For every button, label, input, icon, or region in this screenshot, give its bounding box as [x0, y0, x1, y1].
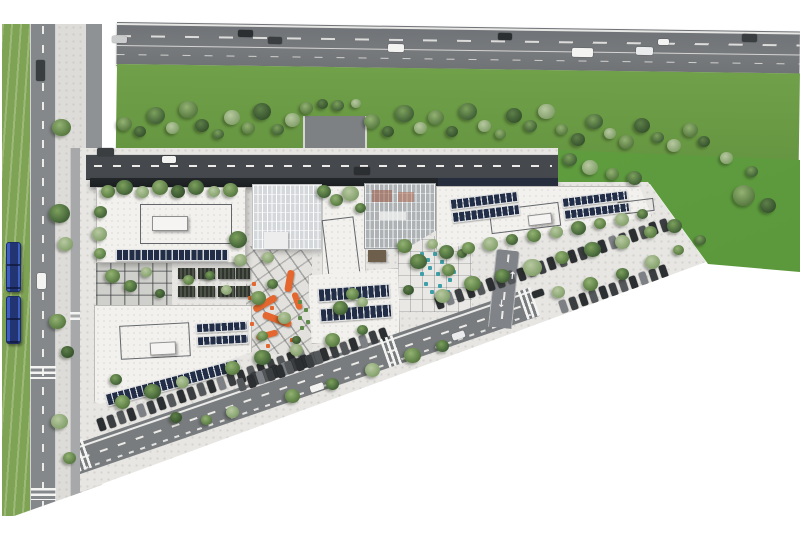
parked-car [176, 390, 186, 404]
orange-chair [250, 322, 254, 326]
parked-car [638, 272, 648, 286]
parked-car [557, 253, 567, 267]
pergola-south-of-atrium [368, 250, 386, 262]
orange-chair [266, 344, 270, 348]
parked-car [658, 265, 668, 279]
teal-seat [436, 272, 440, 276]
parked-car [628, 275, 638, 289]
parked-car [96, 417, 106, 431]
parked-car [659, 218, 669, 232]
teal-seat [433, 252, 437, 256]
parked-car [628, 228, 638, 242]
tram-vehicle [6, 296, 21, 344]
building-southwest-rooftop-box [150, 341, 177, 355]
highway-lane-dash-2 [117, 54, 800, 65]
teal-seat [438, 284, 442, 288]
parked-car [216, 376, 226, 390]
canopy-solar-section [438, 178, 558, 187]
green-chair [306, 320, 310, 324]
parked-car [475, 281, 485, 295]
parked-car [558, 299, 568, 313]
parked-car [567, 250, 577, 264]
teal-seat [430, 290, 434, 294]
parked-car [638, 225, 648, 239]
parked-car [116, 410, 126, 424]
tram-vehicle [6, 242, 21, 292]
lane-arrow-marking: ↓ [497, 300, 506, 311]
green-chair [298, 300, 302, 304]
teal-seat [426, 258, 430, 262]
teal-seat [444, 266, 448, 270]
parked-car [186, 386, 196, 400]
orange-chair [252, 282, 256, 286]
green-chair [300, 326, 304, 330]
parked-car [206, 379, 216, 393]
pergola-canopy [236, 268, 250, 279]
site-plan-rendering: ↑↓ [0, 0, 800, 533]
building-northwest-rooftop-box [152, 216, 188, 231]
highway-lane-dash [117, 35, 800, 47]
parked-car [546, 257, 556, 271]
atrium-walkway [380, 212, 406, 220]
grid-courtyard [96, 262, 172, 308]
pergola-canopy [218, 286, 235, 297]
pergola-canopy [218, 268, 235, 279]
parked-car [598, 285, 608, 299]
pergola-canopy [178, 286, 195, 297]
north-access-road [86, 154, 560, 180]
parked-car [608, 282, 618, 296]
west-road-center-dash [42, 26, 44, 514]
parked-car [126, 407, 136, 421]
parked-car [516, 267, 526, 281]
teal-seat [440, 260, 444, 264]
parked-car [648, 221, 658, 235]
orange-chair [284, 322, 288, 326]
pergola-canopy [198, 286, 215, 297]
parked-car [526, 264, 536, 278]
parked-car [588, 289, 598, 303]
parked-car [106, 414, 116, 428]
pergola-canopy [178, 268, 195, 279]
orange-chair [248, 296, 252, 300]
atrium-interior-detail-2 [398, 192, 414, 202]
teal-seat [420, 272, 424, 276]
zebra-crossing [30, 366, 56, 379]
parked-car [156, 397, 166, 411]
pergola-canopy [198, 268, 215, 279]
teal-seat [424, 282, 428, 286]
parked-car [648, 268, 658, 282]
atrium-interior-detail [372, 190, 392, 202]
parked-car [608, 236, 618, 250]
green-chair [298, 316, 302, 320]
zebra-crossing [31, 488, 56, 500]
parked-car [618, 279, 628, 293]
teal-seat [420, 252, 424, 256]
solar-panel-array [116, 249, 228, 261]
parked-car [166, 393, 176, 407]
orange-chair [290, 338, 294, 342]
parked-car [226, 372, 236, 386]
highway-edge-line [117, 23, 800, 34]
green-chair [304, 308, 308, 312]
parked-car [568, 296, 578, 310]
north-connector-lane [86, 24, 102, 154]
lane-arrow-marking: ↑ [508, 272, 517, 283]
parked-car [136, 403, 146, 417]
atrium-entrance-canopy [264, 232, 288, 249]
teal-seat [452, 270, 456, 274]
parked-car [536, 260, 546, 274]
parked-car [597, 239, 607, 253]
parked-car [577, 246, 587, 260]
parked-car [146, 400, 156, 414]
access-road-dash [94, 165, 552, 167]
parked-car [618, 232, 628, 246]
teal-seat [428, 266, 432, 270]
parked-car [196, 383, 206, 397]
teal-seat [448, 278, 452, 282]
parked-car [578, 292, 588, 306]
highway-center-line [117, 45, 800, 56]
parked-car [587, 243, 597, 257]
orange-chair [270, 306, 274, 310]
entry-road-center-dash [500, 254, 509, 324]
